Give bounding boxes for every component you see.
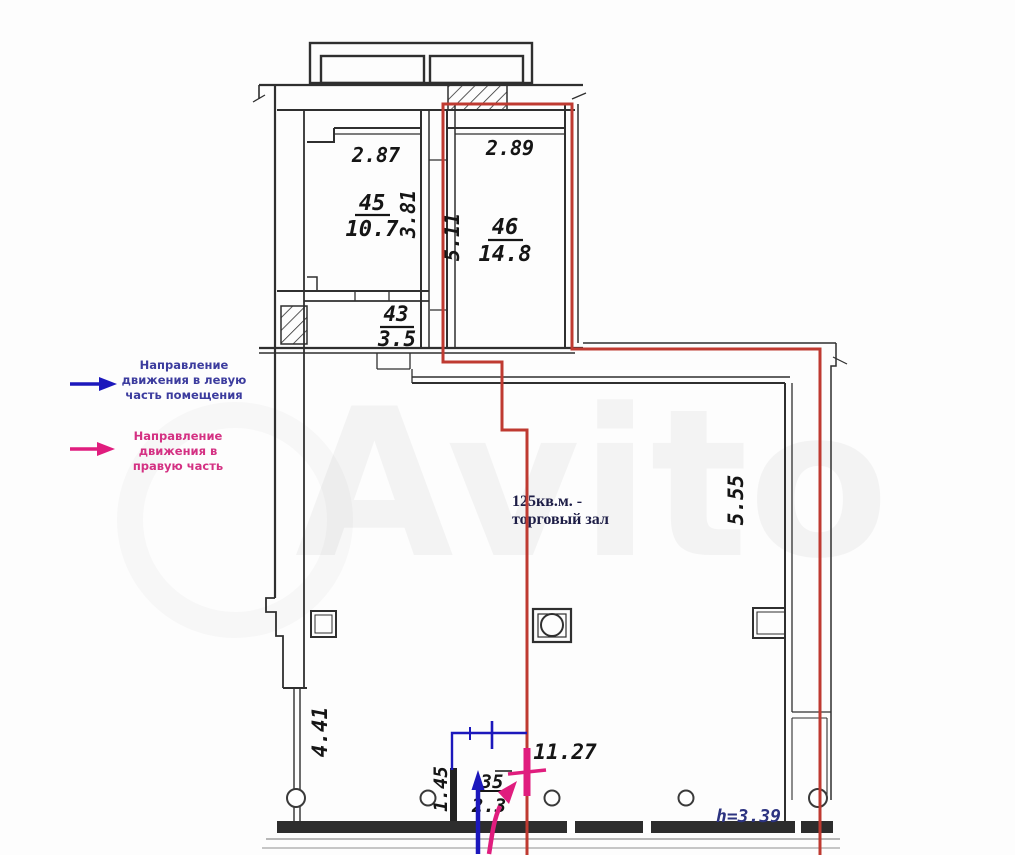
hall-area-label-line1: 125кв.м. -: [512, 493, 582, 510]
room-46-number: 46: [492, 215, 519, 240]
dim-2-89: 2.89: [485, 136, 534, 160]
column-circle: [679, 791, 694, 806]
ceiling-height-note: h=3.39: [716, 806, 781, 827]
tambour-blue-marking: [452, 721, 527, 770]
room-46-area: 14.8: [479, 242, 532, 267]
room-45-number: 45: [359, 191, 386, 216]
legend-pink-line1: Направление: [134, 429, 223, 443]
watermark-ghost: Avito: [130, 366, 889, 625]
bottom-columns: [287, 789, 827, 807]
floor-plan-drawing: Avito: [0, 0, 1015, 855]
legend-pink-line2: движения в: [139, 444, 218, 458]
wall-niche-box: [311, 611, 336, 637]
dim-3-81: 3.81: [396, 190, 420, 239]
floor-plan-page: Avito: [0, 0, 1015, 855]
room-divider-45-43: [277, 291, 429, 301]
legend-pink-line3: правую часть: [133, 459, 223, 473]
column-circle: [809, 789, 827, 807]
column-circle: [287, 789, 305, 807]
dim-4-41: 4.41: [308, 707, 332, 758]
column-symbol: [533, 609, 571, 642]
legend-blue-line2: движения в левую: [122, 373, 247, 387]
column-circle: [545, 791, 560, 806]
dim-11-27: 11.27: [533, 740, 597, 764]
dim-1-45: 1.45: [430, 766, 452, 812]
dim-5-55: 5.55: [724, 475, 748, 526]
legend-blue-line3: часть помещения: [125, 388, 242, 402]
legend-blue-arrow-icon: [70, 377, 117, 391]
room-45-area: 10.7: [346, 217, 400, 242]
dim-2-87: 2.87: [351, 143, 400, 167]
balcony-outline: [310, 43, 532, 83]
legend-blue-line1: Направление: [140, 358, 229, 372]
hatched-wall-top: [448, 85, 507, 110]
room-43-area: 3.5: [377, 327, 416, 351]
hatched-wall-left: [281, 306, 307, 344]
watermark-text: Avito: [295, 366, 889, 604]
legend-pink-arrow-icon: [70, 442, 115, 456]
pink-cross-mark-horizontal: [508, 770, 546, 774]
room-43-number: 43: [383, 302, 408, 326]
